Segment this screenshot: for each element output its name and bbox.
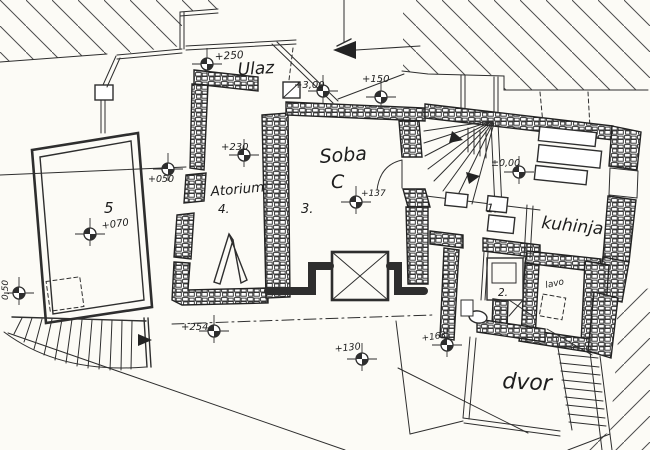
room-label-1: 1.	[486, 201, 498, 216]
room-number-3: 3.	[301, 202, 313, 217]
room-label-5: 5	[104, 199, 114, 217]
svg-text:+050: +050	[148, 174, 174, 185]
svg-text:+137: +137	[361, 189, 386, 199]
room-label-dvor: dvor	[502, 369, 555, 397]
floor-plan-drawing: +250 +3,00 +150 +230 +050 +070 +137 ±0,	[0, 0, 650, 450]
svg-text:+254: +254	[181, 322, 208, 333]
room-number-4: 4.	[218, 202, 229, 216]
svg-text:+150: +150	[362, 74, 389, 85]
room-label-2: 2.	[498, 287, 508, 299]
room-label-soba: Soba	[319, 143, 368, 168]
svg-text:+3,00: +3,00	[294, 80, 325, 91]
svg-text:+230: +230	[221, 142, 248, 153]
svg-text:±0,00: ±0,00	[491, 158, 520, 169]
svg-text:0,50: 0,50	[1, 280, 11, 300]
room-letter-c: C	[331, 171, 345, 193]
room-label-ulaz: Ulaz	[237, 58, 276, 80]
